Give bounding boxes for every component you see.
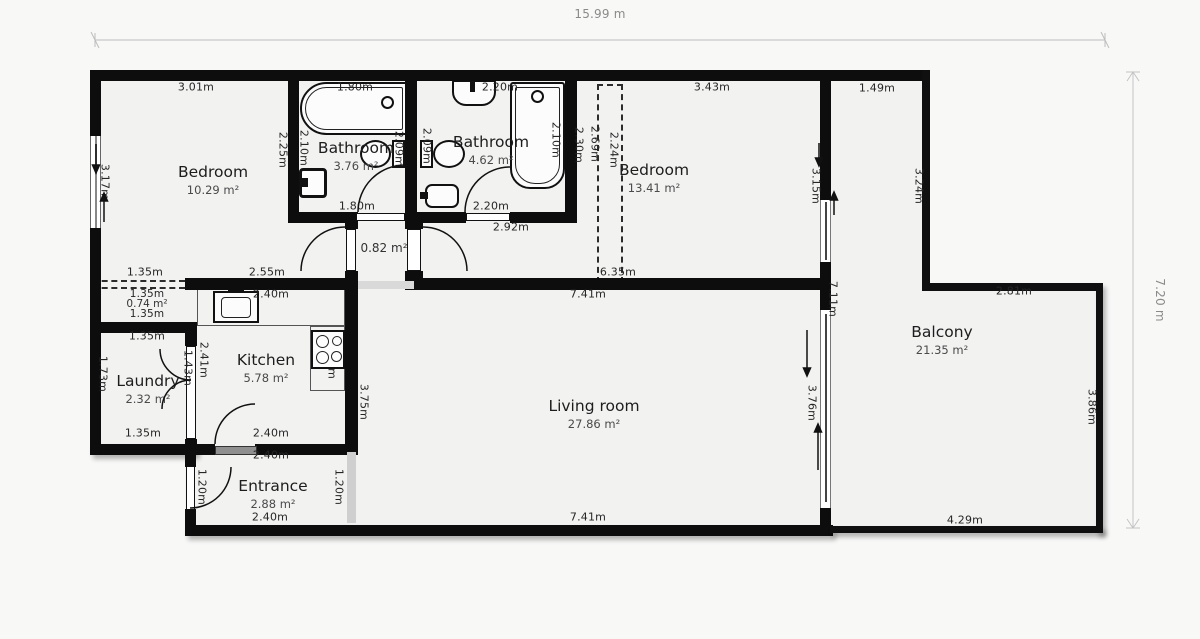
room-name: Bathroom <box>318 139 394 157</box>
dim-label: 1.35m <box>129 330 165 343</box>
room-name: Bedroom <box>619 161 689 179</box>
kitchen-sink-basin <box>221 297 251 318</box>
room-name: Living room <box>548 397 639 415</box>
wall-hall-right-a <box>405 212 423 229</box>
room-label-closet: 0.74 m² <box>126 298 167 310</box>
sink-2 <box>425 184 459 208</box>
room-label-bedroom2: Bedroom 13.41 m² <box>619 161 689 195</box>
dim-label: 2.40m <box>252 511 288 524</box>
wall-balcony-bottom <box>830 526 1103 533</box>
floor-balcony-lower <box>830 283 1103 533</box>
room-label-bathroom2: Bathroom 4.62 m² <box>453 133 529 167</box>
room-label-balcony: Balcony 21.35 m² <box>911 323 972 357</box>
room-name: Entrance <box>238 477 307 495</box>
dim-label: 4.29m <box>947 514 983 527</box>
stove-burner-icon <box>316 351 329 364</box>
room-area: 2.32 m² <box>116 392 179 406</box>
wall-bathroom1-bathroom2 <box>405 70 417 223</box>
floor-plan: 3.01m 1.80m 2.20m 3.43m 1.49m 2.25m 2.10… <box>0 0 1200 639</box>
sink-tap-icon <box>300 178 308 187</box>
stove <box>311 330 345 369</box>
floor-main <box>90 70 830 455</box>
room-label-hallway: 0.82 m² <box>360 239 407 255</box>
overall-width-label: 15.99 m <box>574 7 625 21</box>
dim-label: 3.43m <box>694 81 730 94</box>
dim-label: 2.41m <box>198 342 211 378</box>
dim-label: 3.24m <box>913 168 926 204</box>
room-label-livingroom: Living room 27.86 m² <box>548 397 639 431</box>
kitchen-door-sill <box>215 446 257 455</box>
room-name: Kitchen <box>237 351 295 369</box>
dim-label: 1.80m <box>339 200 375 213</box>
dim-label: 2.40m <box>253 427 289 440</box>
room-area: 4.62 m² <box>453 153 529 167</box>
dim-label: 1.35m <box>125 427 161 440</box>
dim-label: 3.86m <box>1086 389 1099 425</box>
entrance-door-leaf <box>186 466 195 510</box>
room-label-laundry: Laundry 2.32 m² <box>116 372 179 406</box>
wall-exterior-top <box>90 70 930 81</box>
dim-label: 3.01m <box>178 81 214 94</box>
room-name: Bedroom <box>178 163 248 181</box>
sink-2-tap-icon <box>420 192 428 199</box>
dim-label: 2.09m <box>393 131 406 167</box>
dim-label: 2.25m <box>277 132 290 168</box>
dim-label: 7.41m <box>570 511 606 524</box>
overall-height-label: 7.20 m <box>1153 278 1167 321</box>
room-label-entrance: Entrance 2.88 m² <box>238 477 307 511</box>
room-area: 0.82 m² <box>360 241 407 255</box>
dim-label: 1.80m <box>337 81 373 94</box>
dim-label: 2.30m <box>573 127 586 163</box>
room-area: 10.29 m² <box>178 183 248 197</box>
dim-label: 2.40m <box>253 288 289 301</box>
room-area: 0.74 m² <box>126 298 167 310</box>
stove-burner-icon <box>316 335 329 348</box>
dim-label: 2.69m <box>589 126 602 162</box>
wall-livingroom-top <box>415 278 820 290</box>
wall-laundry-bottom <box>90 444 197 455</box>
wall-kitchen-living <box>345 288 358 455</box>
wall-laundry-kitchen-a <box>185 322 197 346</box>
stove-burner-icon <box>331 351 342 362</box>
livingroom-sliding-door <box>820 310 831 508</box>
overall-width-dimension-line <box>91 32 1109 48</box>
room-area: 2.88 m² <box>238 497 307 511</box>
room-name: Laundry <box>116 372 179 390</box>
dim-label: 7.41m <box>570 288 606 301</box>
wall-entrance-left-a <box>185 444 196 467</box>
room-area: 3.76 m² <box>318 159 394 173</box>
room-name: Bathroom <box>453 133 529 151</box>
bedroom2-sliding-door <box>820 200 831 262</box>
room-area: 21.35 m² <box>911 343 972 357</box>
dim-label: 7.11m <box>827 281 840 317</box>
dim-label: 3.76m <box>806 385 819 421</box>
bathtub-2-faucet-icon <box>531 90 544 103</box>
dim-label: 1.73m <box>97 356 110 392</box>
wall-exterior-bottom <box>185 525 833 536</box>
bathtub-faucet-icon <box>381 96 394 109</box>
dim-label: 3.15m <box>810 168 823 204</box>
wall-exterior-left-b <box>90 228 101 455</box>
dim-label: 2.40m <box>253 449 289 462</box>
dim-label: 1.35m <box>127 266 163 279</box>
dim-label: 3.17m <box>99 164 112 200</box>
bathroom1-door-leaf <box>356 213 405 221</box>
dim-label: 2.81m <box>996 285 1032 298</box>
dim-label: 2.10m <box>298 130 311 166</box>
hallway-living-opening <box>358 281 414 289</box>
room-area: 27.86 m² <box>548 417 639 431</box>
dim-label: 1.20m <box>196 469 209 505</box>
dim-label: 2.92m <box>493 221 529 234</box>
room-label-kitchen: Kitchen 5.78 m² <box>237 351 295 385</box>
stove-burner-icon <box>332 336 342 346</box>
entrance-living-opening <box>347 452 356 523</box>
wall-kitchen-bottom-a <box>196 444 215 455</box>
bedroom2-door-leaf <box>407 229 421 271</box>
dim-label: 2.55m <box>249 266 285 279</box>
overall-height-dimension-line <box>1126 72 1140 528</box>
dim-label: 6.35m <box>600 266 636 279</box>
room-area: 5.78 m² <box>237 371 295 385</box>
dim-label: 2.09m <box>421 128 434 164</box>
wall-exterior-left-a <box>90 70 101 136</box>
room-name: Balcony <box>911 323 972 341</box>
dim-label: 1.49m <box>859 82 895 95</box>
dim-label: 3.75m <box>358 384 371 420</box>
dim-label: 1.43m <box>182 350 195 386</box>
room-label-bedroom1: Bedroom 10.29 m² <box>178 163 248 197</box>
room-label-bathroom1: Bathroom 3.76 m² <box>318 139 394 173</box>
dim-label: 1.20m <box>333 469 346 505</box>
dim-label: 2.20m <box>482 81 518 94</box>
room-area: 13.41 m² <box>619 181 689 195</box>
dim-label: 2.20m <box>473 200 509 213</box>
dim-label: 2.10m <box>550 122 563 158</box>
washbasin-tap-icon <box>470 82 475 92</box>
bedroom1-door-leaf <box>346 229 356 271</box>
